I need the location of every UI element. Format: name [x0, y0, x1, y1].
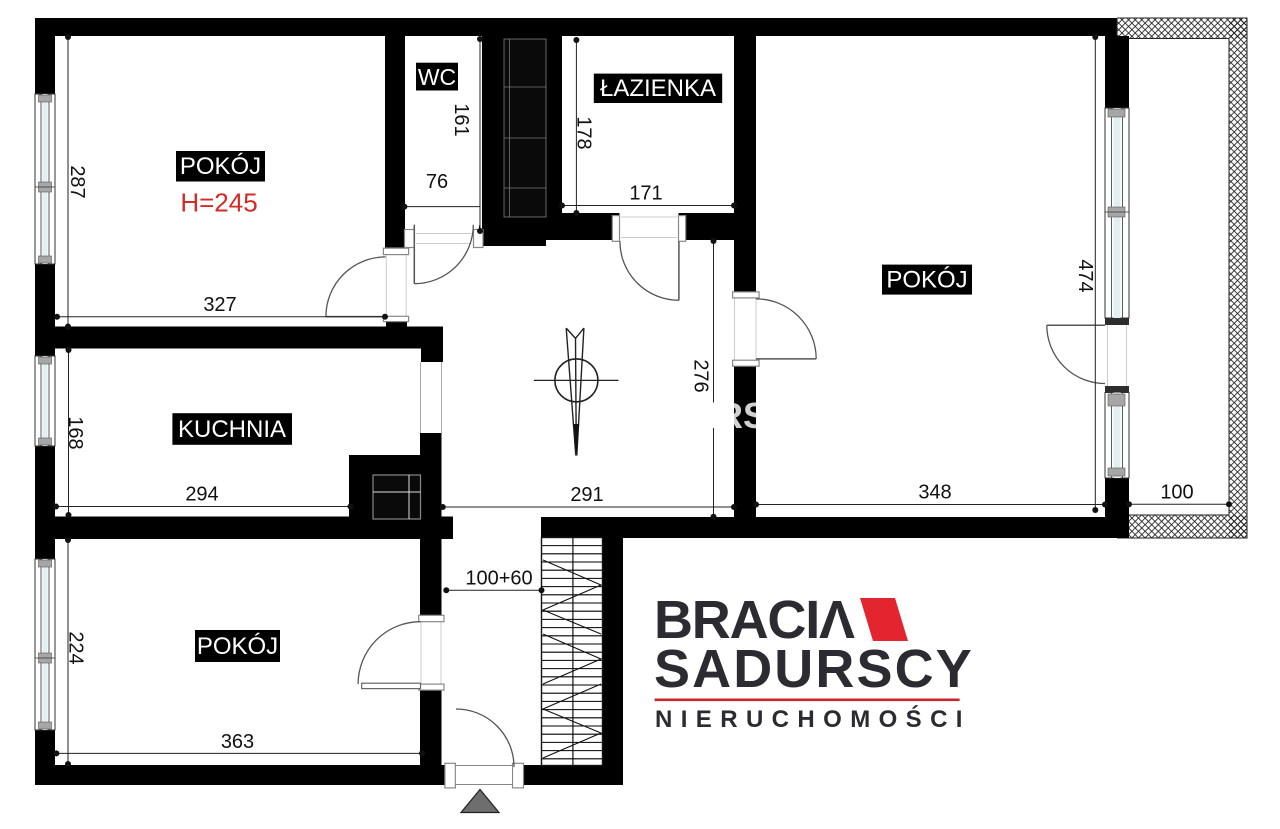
svg-text:SADURSCY: SADURSCY	[654, 639, 974, 699]
svg-text:ŁAZIENKA: ŁAZIENKA	[600, 75, 716, 102]
svg-text:294: 294	[185, 484, 218, 506]
svg-text:363: 363	[221, 731, 254, 753]
svg-text:POKÓJ: POKÓJ	[197, 633, 278, 660]
svg-text:276: 276	[690, 359, 712, 392]
svg-text:100+60: 100+60	[465, 567, 532, 589]
svg-text:H=245: H=245	[180, 188, 257, 218]
svg-text:287: 287	[66, 165, 88, 198]
svg-text:KUCHNIA: KUCHNIA	[178, 416, 286, 443]
svg-text:327: 327	[203, 294, 236, 316]
svg-text:171: 171	[629, 183, 662, 205]
svg-text:474: 474	[1074, 259, 1096, 292]
svg-text:291: 291	[570, 484, 603, 506]
svg-text:76: 76	[426, 171, 448, 193]
svg-text:168: 168	[64, 416, 86, 449]
svg-text:100: 100	[1160, 481, 1193, 503]
svg-text:POKÓJ: POKÓJ	[886, 267, 967, 294]
svg-text:WC: WC	[418, 64, 456, 90]
svg-text:RS: RS	[717, 395, 767, 436]
svg-text:161: 161	[450, 103, 472, 136]
svg-text:178: 178	[573, 116, 595, 149]
svg-text:224: 224	[65, 631, 87, 664]
svg-text:NIERUCHOMOŚCI: NIERUCHOMOŚCI	[655, 705, 971, 733]
svg-text:348: 348	[918, 482, 951, 504]
svg-text:POKÓJ: POKÓJ	[180, 153, 261, 180]
